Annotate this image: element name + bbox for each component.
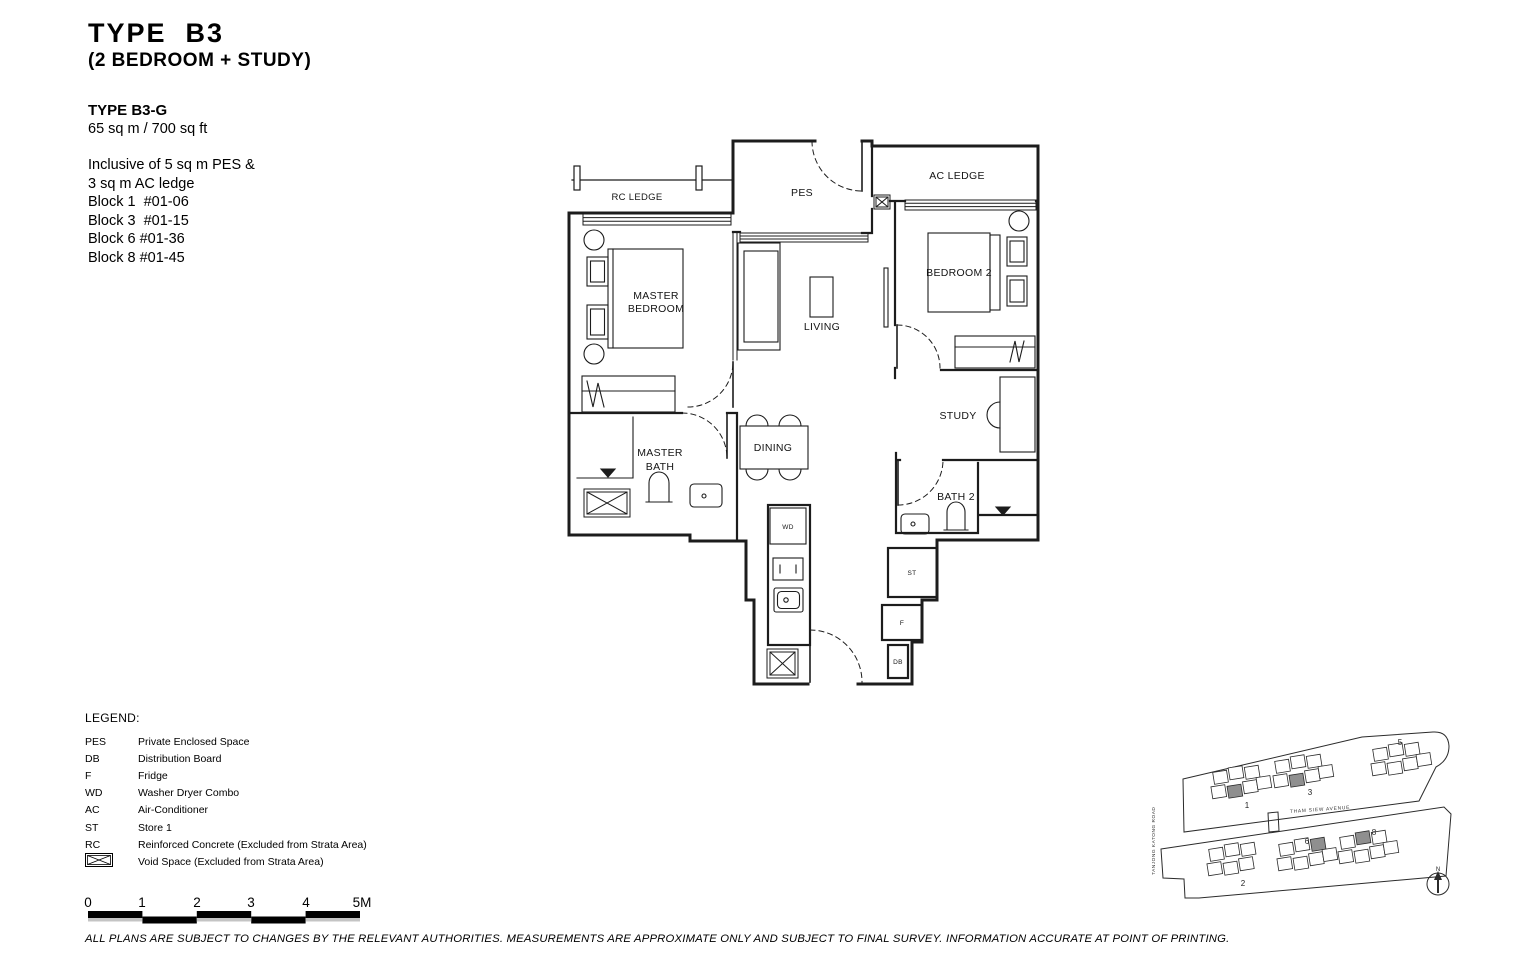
hob — [773, 558, 803, 580]
road-label-tham-siew: THAM SIEW AVENUE — [1290, 805, 1351, 815]
toilet-master — [646, 472, 672, 502]
window-pes — [740, 233, 868, 242]
unit — [1403, 757, 1419, 771]
legend-row: PES Private Enclosed Space — [85, 733, 505, 750]
label-master-bedroom: MASTER — [633, 290, 679, 302]
label-master-bedroom: BEDROOM — [628, 303, 684, 315]
disclaimer-text: ALL PLANS ARE SUBJECT TO CHANGES BY THE … — [85, 933, 1229, 945]
unit — [1228, 766, 1244, 780]
unit — [1223, 861, 1239, 875]
scale-label: 5M — [353, 895, 372, 910]
label-db: DB — [893, 659, 903, 666]
unit-highlighted — [1289, 773, 1305, 787]
scale-label: 0 — [84, 895, 92, 910]
legend-row: DB Distribution Board — [85, 750, 505, 767]
scale-label: 2 — [193, 895, 201, 910]
unit — [1207, 862, 1223, 876]
furniture — [582, 211, 1035, 480]
unit — [1309, 852, 1325, 866]
tv-console — [884, 268, 888, 327]
legend-key: RC — [85, 839, 138, 851]
unit — [1279, 842, 1295, 856]
unit — [1209, 847, 1225, 861]
unit — [1239, 857, 1255, 871]
unit — [1354, 849, 1370, 863]
site-block-label-6: 6 — [1305, 837, 1310, 846]
site-plan: 1 3 5 2 6 8 TANJONG KATONG ROAD THAM SIE… — [1151, 732, 1451, 898]
floorplan-page: TYPE B3 (2 BEDROOM + STUDY) TYPE B3-G 65… — [0, 0, 1520, 968]
window-master-bedroom — [583, 214, 731, 225]
study-desk — [987, 377, 1035, 452]
bed-bedroom2 — [928, 211, 1029, 312]
door-arc-master-bedroom — [688, 362, 733, 407]
legend-key: PES — [85, 736, 138, 748]
legend-key: AC — [85, 804, 138, 816]
door-arc-master-bath — [682, 413, 727, 458]
unit — [1256, 776, 1272, 790]
scale-seg — [306, 911, 360, 918]
unit — [1387, 761, 1403, 775]
void-symbol-ac — [874, 195, 890, 209]
road-label-tanjong-katong: TANJONG KATONG ROAD — [1151, 807, 1157, 875]
wardrobe-master — [582, 376, 675, 412]
study-chair — [987, 402, 1000, 428]
unit — [1338, 850, 1354, 864]
label-rc-ledge: RC LEDGE — [612, 192, 663, 203]
unit — [1240, 842, 1256, 856]
scale-label: 3 — [247, 895, 255, 910]
unit — [1322, 848, 1338, 862]
legend-key: F — [85, 770, 138, 782]
unit — [1277, 857, 1293, 871]
site-block-label-5: 5 — [1398, 738, 1403, 747]
scale-label: 1 — [138, 895, 146, 910]
void-space-symbol — [85, 853, 113, 867]
door-arcs — [682, 141, 943, 682]
site-block-2 — [1204, 840, 1258, 877]
label-master-bath: MASTER — [637, 447, 683, 459]
glass-living — [733, 232, 737, 360]
legend-row: ST Store 1 — [85, 819, 505, 836]
unit-highlighted — [1355, 831, 1371, 845]
unit — [1305, 769, 1321, 783]
legend-key: ST — [85, 822, 138, 834]
legend-desc: Store 1 — [138, 822, 505, 834]
label-bedroom2: BEDROOM 2 — [926, 267, 992, 279]
unit — [1293, 856, 1309, 870]
label-study: STUDY — [939, 410, 976, 422]
wardrobe-bedroom2 — [955, 336, 1035, 368]
legend-row: WD Washer Dryer Combo — [85, 785, 505, 802]
site-block-label-8: 8 — [1372, 828, 1377, 837]
scale-seg — [142, 917, 196, 924]
site-block-label-1: 1 — [1245, 801, 1250, 810]
sofa — [738, 243, 780, 350]
legend: LEGEND: PES Private Enclosed Space DB Di… — [85, 711, 505, 871]
unit — [1213, 770, 1229, 784]
label-pes: PES — [791, 187, 813, 199]
label-wd: WD — [782, 524, 793, 531]
legend-desc: Washer Dryer Combo — [138, 787, 505, 799]
floor-trap-bath2 — [996, 507, 1010, 515]
unit-highlighted — [1227, 784, 1243, 798]
site-block-label-3: 3 — [1308, 788, 1313, 797]
window-bedroom2 — [905, 200, 1036, 210]
label-bath2: BATH 2 — [937, 491, 975, 503]
label-f: F — [900, 620, 904, 627]
door-arc-bedroom2 — [897, 325, 940, 368]
site-block-label-2: 2 — [1241, 879, 1246, 888]
unit — [1370, 845, 1386, 859]
north-label: N — [1436, 867, 1440, 873]
legend-key: WD — [85, 787, 138, 799]
floor-trap-master — [601, 469, 615, 477]
label-master-bath: BATH — [646, 461, 674, 473]
bath2-fixtures — [901, 502, 1010, 534]
scale-bar: 0 1 2 3 4 5M — [84, 895, 371, 924]
legend-desc: Reinforced Concrete (Excluded from Strat… — [138, 839, 505, 851]
site-parcel-lower — [1161, 807, 1451, 898]
unit — [1340, 835, 1356, 849]
unit — [1373, 747, 1389, 761]
scale-seg — [251, 917, 305, 924]
site-block-1 — [1208, 762, 1272, 801]
unit — [1318, 765, 1334, 779]
unit — [1224, 843, 1240, 857]
legend-row: AC Air-Conditioner — [85, 802, 505, 819]
north-arrow-icon: N — [1427, 867, 1449, 895]
scale-seg — [88, 911, 142, 918]
unit — [1371, 762, 1387, 776]
label-dining: DINING — [754, 442, 793, 454]
legend-desc: Distribution Board — [138, 753, 505, 765]
room-labels: RC LEDGE PES AC LEDGE MASTER BEDROOM LIV… — [612, 170, 992, 666]
door-arc-entry — [810, 630, 862, 682]
legend-desc: Fridge — [138, 770, 505, 782]
scale-label: 4 — [302, 895, 310, 910]
unit — [1383, 841, 1399, 855]
legend-row-void: Void Space (Excluded from Strata Area) — [85, 853, 505, 870]
label-living: LIVING — [804, 321, 840, 333]
legend-desc: Air-Conditioner — [138, 804, 505, 816]
scale-seg — [197, 911, 251, 918]
legend-desc: Private Enclosed Space — [138, 736, 505, 748]
legend-key: DB — [85, 753, 138, 765]
unit — [1243, 780, 1259, 794]
unit — [1290, 755, 1306, 769]
site-block-8 — [1335, 827, 1399, 866]
toilet-bath2 — [944, 502, 968, 530]
unit — [1275, 759, 1291, 773]
unit — [1211, 785, 1227, 799]
void-symbol-kitchen — [767, 649, 798, 678]
unit — [1416, 753, 1432, 767]
floorplan-drawing: RC LEDGE PES AC LEDGE MASTER BEDROOM LIV… — [569, 141, 1038, 684]
door-arc-pes — [812, 141, 862, 191]
label-ac-ledge: AC LEDGE — [929, 170, 985, 182]
unit — [1273, 774, 1289, 788]
legend-row: RC Reinforced Concrete (Excluded from St… — [85, 836, 505, 853]
void-symbol-master-bath — [584, 489, 630, 517]
rc-ledge — [572, 166, 733, 190]
legend-row: F Fridge — [85, 767, 505, 784]
legend-desc: Void Space (Excluded from Strata Area) — [138, 856, 505, 868]
coffee-table — [810, 277, 833, 317]
site-road-connector — [1268, 812, 1279, 832]
label-st: ST — [908, 570, 917, 577]
legend-heading: LEGEND: — [85, 711, 505, 725]
